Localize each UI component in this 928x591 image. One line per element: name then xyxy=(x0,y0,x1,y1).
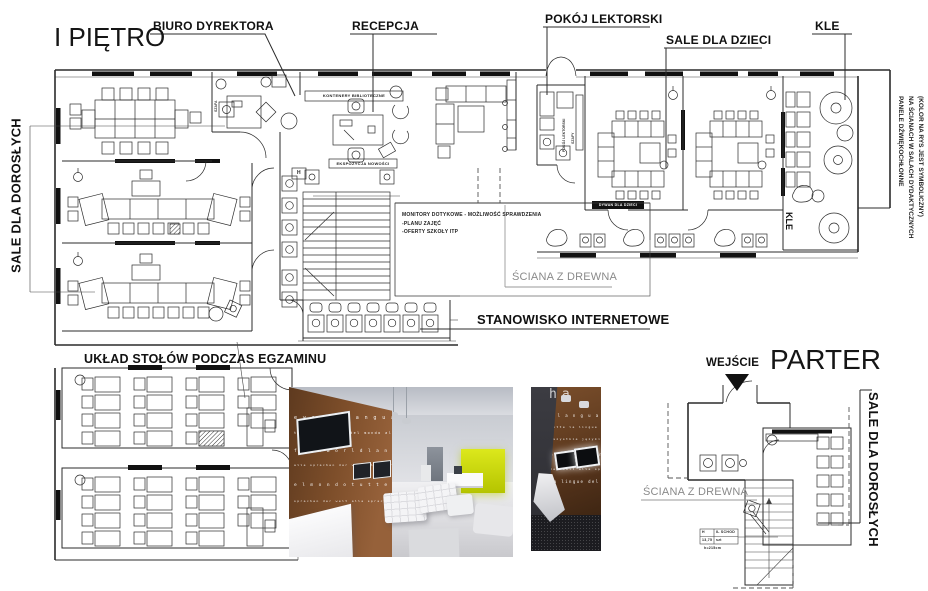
micro-label-szafy: SZAFY xyxy=(571,133,575,144)
wall-text-line: wszystkie języki świata wszystk xyxy=(550,437,601,441)
exam-rooms xyxy=(55,365,298,560)
acoustic-panels-note: PANELE DŹWIĘKOCHŁONNE NA ŚCIANACH W SALA… xyxy=(895,96,925,256)
callout-sale-dla-dzieci: SALE DLA DZIECI xyxy=(666,33,771,47)
stairs-legend-r2c2: szt xyxy=(716,538,722,542)
callout-sciana-z-drewna-2: ŚCIANA Z DREWNA xyxy=(643,486,748,498)
callout-sciana-z-drewna-1: ŚCIANA Z DREWNA xyxy=(512,271,617,283)
render-lamp-shade-2 xyxy=(402,418,411,424)
micro-label-pokoj-lektorski: POKÓJ LEKTORSKI xyxy=(562,119,566,152)
callout-recepcja: RECEPCJA xyxy=(352,19,419,33)
render-armchair xyxy=(446,494,474,517)
monitors-note-line1: MONITORY DOTYKOWE - MOŻLIWOŚĆ SPRAWDZENI… xyxy=(402,211,542,220)
micro-label-kle-wall: KLE xyxy=(784,212,794,246)
micro-label-ekspozycja: EKSPOZYCJA NOWOŚCI xyxy=(329,161,397,166)
touch-monitors-note: MONITORY DOTYKOWE - MOŻLIWOŚĆ SPRAWDZENI… xyxy=(402,211,542,237)
micro-label-dywan: DYWAN DLA DZIECI xyxy=(592,203,644,207)
wall-text-line: tutte la lingue del mondo xyxy=(550,425,601,429)
callout-stanowisko-internetowe: STANOWISKO INTERNETOWE xyxy=(477,312,669,327)
interior-render-media-wall: d l a n g u a g e s o f t h e tutte la l… xyxy=(531,387,601,551)
render-foreground-seat xyxy=(408,528,459,557)
acoustic-note-line3: (KOLOR NA RYS JEST SYMBOLICZNY) xyxy=(915,96,925,256)
micro-label-szafa: SZAFA xyxy=(214,101,218,112)
parter-title: PARTER xyxy=(770,344,881,376)
callout-biuro-dyrektora: BIURO DYREKTORA xyxy=(153,19,274,33)
callout-kle: KLE xyxy=(815,19,840,33)
render-chaise xyxy=(473,503,513,537)
wall-text-line: la lingue del mondo tu xyxy=(550,479,601,484)
exam-layout-title: UKŁAD STOŁÓW PODCZAS EGZAMINU xyxy=(84,352,326,366)
render2-screen-2 xyxy=(574,445,601,468)
monitors-note-line3: -OFERTY SZKOŁY ITP xyxy=(402,228,542,237)
floor-plan-board: I PIĘTRO BIURO DYREKTORA RECEPCJA POKÓJ … xyxy=(0,0,928,591)
stairs-legend-note: h=215cm xyxy=(704,546,721,550)
micro-label-hydrant: H xyxy=(294,170,304,176)
first-floor-walls xyxy=(55,57,890,345)
acoustic-note-line1: PANELE DŹWIĘKOCHŁONNE xyxy=(895,96,905,256)
render-lamp-wire-2 xyxy=(406,387,407,419)
acoustic-note-line2: NA ŚCIANACH W SALACH DYDAKTYCZNYCH xyxy=(905,96,915,256)
parter-plan xyxy=(668,381,851,588)
render-lamp-wire-1 xyxy=(393,387,394,413)
monitors-note-line2: -PLANU ZAJĘĆ xyxy=(402,220,542,229)
render-desk-chair xyxy=(421,465,431,481)
render2-lamp-1 xyxy=(561,395,571,402)
entrance-arrow-icon xyxy=(725,374,749,391)
callout-sale-dla-doroslych-right: SALE DLA DOROSŁYCH xyxy=(866,392,881,532)
render-desk-monitor xyxy=(454,466,462,474)
micro-label-kontenery: KONTENERY BIBLIOTECZNE xyxy=(305,93,403,98)
first-floor-title: I PIĘTRO xyxy=(54,22,165,53)
render-wall-screen-1 xyxy=(353,462,371,480)
render-wall-screen-2 xyxy=(373,460,391,479)
stairs-legend-r2c1: 13,75 xyxy=(702,538,712,542)
callout-pokoj-lektorski: POKÓJ LEKTORSKI xyxy=(545,12,662,26)
render2-lamp-2 xyxy=(579,401,589,408)
stairs-legend-r1c1: H xyxy=(702,530,705,534)
stairs-legend-r1c2: IL SCHOD xyxy=(716,530,735,534)
callout-wejscie: WEJŚCIE xyxy=(706,357,759,369)
wall-text-line: d l a n g u a g e s o f t h e xyxy=(550,413,601,418)
callout-sale-dla-doroslych-left: SALE DLA DOROSŁYCH xyxy=(9,111,24,281)
interior-render-lounge: e w o r l d l a n g u a g e s o f t h e … xyxy=(289,387,513,557)
render2-floor xyxy=(531,515,601,551)
